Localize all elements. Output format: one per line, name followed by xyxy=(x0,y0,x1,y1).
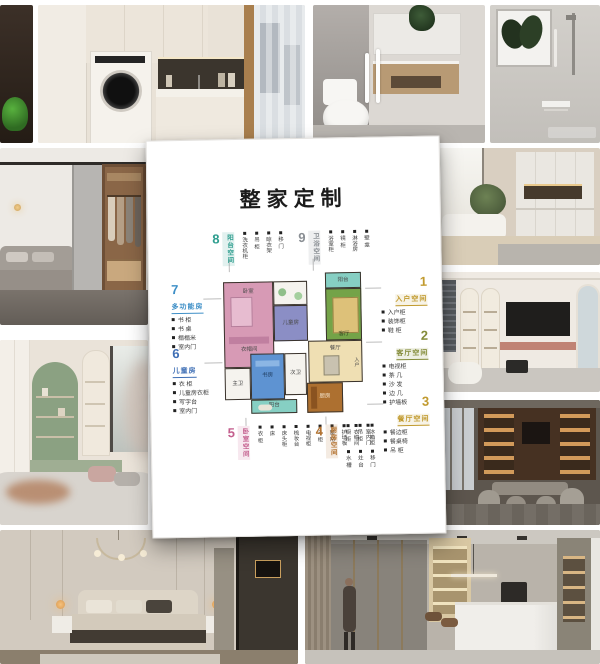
item: 移 门 xyxy=(274,231,284,249)
leader-line xyxy=(325,416,326,424)
window-strip xyxy=(591,538,600,650)
open-wardrobe xyxy=(102,164,146,308)
shower-head xyxy=(566,15,576,20)
fur-throw xyxy=(6,480,70,504)
shelf xyxy=(85,403,105,405)
washer-drum xyxy=(100,70,142,112)
item: 壁 龛 xyxy=(360,230,370,248)
sheer-curtain xyxy=(254,5,305,143)
track-light xyxy=(517,536,527,540)
callout-7: 7 多功能房 书 柜 书 桌 榻榻米 室内门 xyxy=(171,282,220,353)
bronze-frame xyxy=(401,540,403,664)
window-frame-wood xyxy=(244,5,254,143)
rug xyxy=(498,244,600,265)
floor-plan: 卧室 衣帽间 儿童房 阳台 客厅 餐厅 入户 厨房 书房 xyxy=(221,268,366,418)
gray-pillow xyxy=(114,472,140,486)
room-bath-left: 主卫 xyxy=(225,368,252,400)
room-kids: 儿童房 xyxy=(273,305,308,342)
room-bath-top xyxy=(273,281,307,306)
pendant-cord xyxy=(473,544,474,574)
callout-number: 5 xyxy=(228,426,235,439)
callout-number: 1 xyxy=(381,275,427,289)
callout-number: 4 xyxy=(316,425,323,438)
pillow xyxy=(86,600,112,613)
hanging-plant xyxy=(409,5,435,31)
plush-bear-chair xyxy=(2,97,28,131)
room-living: 客厅 xyxy=(325,288,362,341)
callout-title: 卧室空间 xyxy=(238,426,251,460)
chandelier-bulb xyxy=(118,554,125,561)
faucet xyxy=(198,75,200,89)
callout-3: 3 餐厅空间 餐边柜 餐桌椅 吊 柜 xyxy=(383,395,430,457)
callout-number: 9 xyxy=(298,231,305,244)
callout-title: 入户空间 xyxy=(395,294,427,307)
callout-title: 卫浴空间 xyxy=(308,231,321,265)
shelf xyxy=(463,329,476,331)
green-arch-shelf xyxy=(32,362,78,464)
room-bath-center: 次卫 xyxy=(284,353,307,395)
room-balcony-bottom: 阳台 xyxy=(251,399,297,414)
bed xyxy=(0,246,74,290)
grab-bar xyxy=(554,29,557,67)
shelf xyxy=(484,329,497,331)
decor xyxy=(58,408,65,416)
ceiling xyxy=(440,400,600,408)
item: 晾衣架 xyxy=(262,231,272,253)
lit-shelves xyxy=(484,414,514,474)
kitchen-counter-icon xyxy=(311,387,317,409)
coffee-machine xyxy=(501,582,527,604)
cabinet-niche xyxy=(524,184,582,199)
tall-cabinets xyxy=(516,152,594,238)
photo-dark-corner xyxy=(0,5,33,143)
dark-floor xyxy=(0,290,148,325)
shelf-light xyxy=(158,57,250,59)
callout-6: 6 儿童房 衣 柜 儿童房衣柜 写字台 室内门 xyxy=(172,346,223,417)
bronze-frame xyxy=(377,540,379,664)
callout-number: 2 xyxy=(382,329,428,343)
washer-control-panel xyxy=(95,56,145,63)
callout-number: 7 xyxy=(171,282,219,296)
callout-title: 多功能房 xyxy=(171,302,203,315)
room-kitchen: 厨房 xyxy=(307,382,344,413)
cabinet-niche-lit xyxy=(563,556,585,622)
room-dining: 餐厅 入户 xyxy=(308,340,363,383)
room-study: 书房 xyxy=(250,353,285,400)
crown-molding xyxy=(440,278,600,280)
desk-icon xyxy=(255,360,279,366)
photo-bedroom-wardrobe xyxy=(0,148,148,325)
item: 冰箱柜 xyxy=(366,424,376,450)
tub-icon xyxy=(258,404,272,410)
callout-4: 4 厨房空间 橱 柜 吊 柜 冰箱柜 水 槽 灶 台 移 门 xyxy=(316,424,378,477)
custom-home-card: 整家定制 8 阳台空间 洗衣机柜 吊 柜 晾衣架 移 门 9 卫浴空间 浴室柜 … xyxy=(146,135,447,538)
photo-bathroom-toilet xyxy=(313,5,485,143)
pendant-light xyxy=(14,204,21,211)
washer-tower xyxy=(90,51,152,143)
photo-living-storage xyxy=(440,148,600,265)
callout-title: 阳台空间 xyxy=(222,232,235,266)
closet-lit-shelves xyxy=(247,544,285,636)
coffee-table xyxy=(506,360,528,373)
item: 浴室柜 xyxy=(324,230,334,252)
bottle xyxy=(166,75,172,87)
bottle xyxy=(218,73,225,87)
bottle xyxy=(228,73,235,87)
callout-number: 8 xyxy=(212,232,219,245)
photo-shower-room xyxy=(490,5,600,143)
arch-doorway xyxy=(576,284,600,376)
arch-bookcase xyxy=(481,288,500,372)
chandelier-bulb xyxy=(140,550,147,557)
watermark xyxy=(548,127,596,138)
callout-title: 餐厅空间 xyxy=(397,414,429,427)
callout-title: 儿童房 xyxy=(172,366,196,378)
shelf xyxy=(36,396,74,398)
shelf xyxy=(463,311,476,313)
door-panel xyxy=(38,5,87,143)
grab-bar xyxy=(376,49,380,103)
lit-shelves xyxy=(560,414,590,474)
seam xyxy=(516,208,594,210)
sliding-door xyxy=(72,165,104,307)
dining-table-icon xyxy=(323,355,339,375)
callout-title: 客厅空间 xyxy=(396,348,428,361)
dining-table xyxy=(492,482,568,495)
item: 橱 柜 xyxy=(342,424,352,450)
photo-dining-room xyxy=(440,400,600,525)
item: 镜 柜 xyxy=(336,230,346,248)
linear-pendant xyxy=(451,574,497,577)
wardrobe-drawers xyxy=(107,259,141,281)
plant-icon xyxy=(278,288,286,296)
white-wardrobe xyxy=(0,340,30,490)
living-table-icon xyxy=(332,297,359,333)
hanging-clothes xyxy=(135,197,141,247)
shelf xyxy=(36,436,74,438)
pink-pillow xyxy=(88,466,116,482)
leader-line xyxy=(367,403,383,404)
callout-number: 6 xyxy=(172,346,222,360)
shower-rail xyxy=(572,13,575,75)
window-view xyxy=(254,5,305,143)
item: 水 槽 xyxy=(342,450,352,476)
bed-foreground xyxy=(0,472,148,525)
callout-number: 3 xyxy=(383,395,429,409)
callout-title: 厨房空间 xyxy=(326,424,339,458)
dark-closet xyxy=(236,530,298,664)
duvet xyxy=(0,270,74,290)
card-title: 整家定制 xyxy=(147,180,439,215)
leader-line xyxy=(365,288,381,289)
photo-kids-bedroom xyxy=(0,340,148,525)
shelf xyxy=(85,425,105,427)
hanging-clothes xyxy=(108,197,115,241)
leader-line xyxy=(366,341,382,342)
decor xyxy=(42,388,48,396)
carpet xyxy=(440,504,600,525)
chandelier xyxy=(96,538,146,560)
window-palms xyxy=(496,9,552,67)
poster: { "card": { "title": "整家定制", "sections":… xyxy=(0,0,600,664)
lounge-chair xyxy=(448,362,482,384)
lower-cabinet xyxy=(156,97,252,143)
plant-icon xyxy=(294,292,302,300)
shelf xyxy=(484,347,497,349)
wardrobe-shelf xyxy=(107,173,141,181)
pillow xyxy=(116,600,142,613)
leader-line xyxy=(245,418,246,426)
shower-stool xyxy=(542,101,570,107)
wall-panel-line xyxy=(30,530,31,620)
counter xyxy=(156,89,252,97)
shelf xyxy=(85,381,105,383)
mirror-column xyxy=(214,548,234,652)
cream-arch-shelf xyxy=(82,350,110,456)
nightstand xyxy=(52,616,72,633)
shelf xyxy=(484,311,497,313)
wardrobe-icon xyxy=(229,336,269,344)
photo-kitchen xyxy=(305,530,600,664)
bed-icon xyxy=(230,297,253,327)
hanging-clothes xyxy=(126,197,133,243)
item: 电视柜 xyxy=(302,425,312,447)
woman-head xyxy=(345,578,353,586)
callout-items: 橱 柜 吊 柜 冰箱柜 水 槽 灶 台 移 门 xyxy=(341,424,378,477)
floor xyxy=(305,650,600,664)
shelf xyxy=(36,416,74,418)
item: 吊 柜 xyxy=(354,424,364,450)
pillow xyxy=(6,252,28,262)
item: 灶 台 xyxy=(354,450,364,476)
room-balcony-top: 阳台 xyxy=(325,272,361,289)
item: 淋浴房 xyxy=(348,230,358,252)
vanity-niche xyxy=(391,76,441,88)
bedside-lamp xyxy=(56,600,65,609)
shelf xyxy=(463,347,476,349)
plant xyxy=(470,184,506,216)
bed-throw xyxy=(70,630,206,643)
bar-stool xyxy=(425,612,442,621)
item: 梳妆台 xyxy=(290,425,300,447)
pillow xyxy=(32,252,54,262)
item: 移 门 xyxy=(366,450,376,476)
callout-8: 8 阳台空间 洗衣机柜 吊 柜 晾衣架 移 门 xyxy=(212,231,286,266)
textured-wall xyxy=(305,530,331,664)
tv-screen xyxy=(506,302,570,336)
closet-appliance xyxy=(255,560,281,578)
bar-stool xyxy=(441,618,458,627)
photo-tv-lounge xyxy=(440,272,600,392)
wood-vanity xyxy=(373,61,459,94)
olive-cabinets xyxy=(557,538,591,650)
item: 床头柜 xyxy=(278,425,288,447)
item: 吊 柜 xyxy=(250,232,260,250)
callout-9: 9 卫浴空间 浴室柜 镜 柜 淋浴房 壁 龛 xyxy=(298,230,372,265)
item: 吊 柜 xyxy=(384,447,430,457)
photo-master-bedroom xyxy=(0,530,298,664)
tv-bench xyxy=(500,342,576,350)
hanging-clothes xyxy=(117,197,124,245)
center-niche xyxy=(522,422,550,444)
wall-panel-line xyxy=(204,530,205,620)
wood-cabinet-wall xyxy=(478,408,596,480)
woman-figure xyxy=(343,586,356,632)
item: 衣 柜 xyxy=(254,426,264,444)
item: 洗衣机柜 xyxy=(238,232,248,259)
rug xyxy=(40,654,220,664)
item: 床 xyxy=(266,425,276,436)
shelf-niche xyxy=(158,57,250,89)
dark-pillow xyxy=(146,600,172,613)
item: 室内门 xyxy=(173,407,223,417)
grab-bar xyxy=(365,53,369,103)
arch-bookcase xyxy=(460,288,479,372)
photo-laundry-room xyxy=(38,5,305,143)
chandelier-bulb xyxy=(94,550,101,557)
glass-partition xyxy=(331,540,427,664)
